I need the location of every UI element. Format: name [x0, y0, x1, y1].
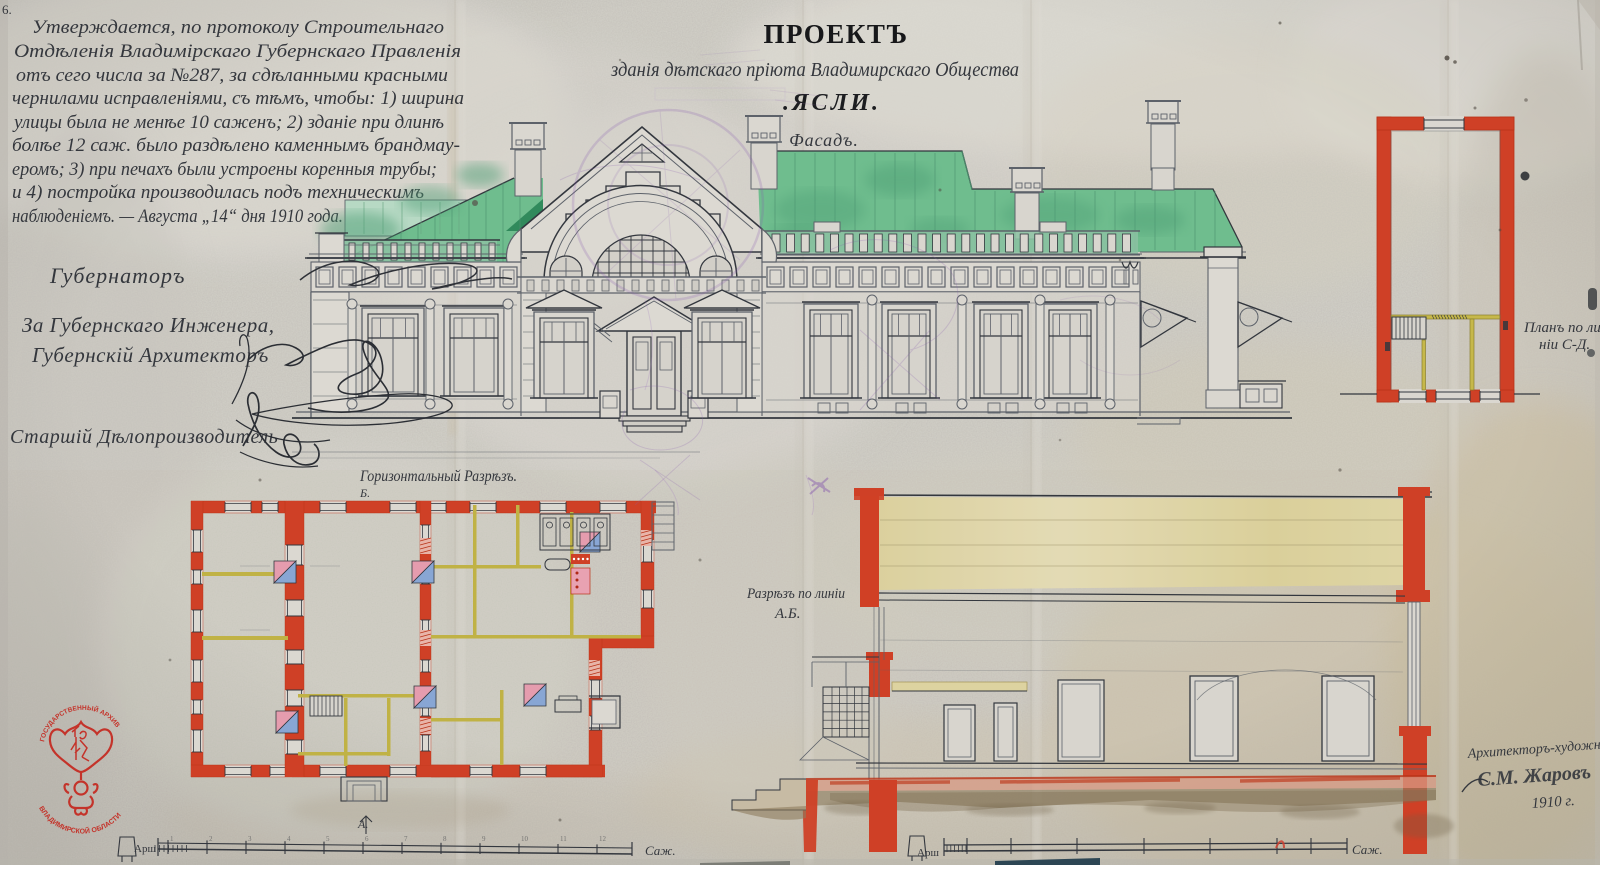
- svg-text:11: 11: [560, 835, 567, 843]
- svg-text:Фасадъ.: Фасадъ.: [789, 130, 859, 150]
- svg-text:9: 9: [482, 835, 486, 843]
- svg-text:Планъ по ли: Планъ по ли: [1523, 320, 1600, 336]
- svg-text:Саж.: Саж.: [645, 843, 676, 858]
- svg-text:2: 2: [209, 835, 213, 843]
- svg-text:5: 5: [326, 835, 330, 843]
- svg-text:Губернскій Архитекторъ: Губернскій Архитекторъ: [31, 343, 269, 367]
- svg-text:зданія дѣтскаго пріюта Влад: зданія дѣтскаго пріюта Владимирскаго Общ…: [610, 59, 1019, 81]
- svg-text:8: 8: [443, 835, 447, 843]
- svg-text:еромъ; 3) при печахъ были уст: еромъ; 3) при печахъ были устроены корен…: [12, 159, 437, 180]
- svg-text:Отдѣленія Владимірскаго Губерн: Отдѣленія Владимірскаго Губернскаго Прав…: [14, 41, 461, 62]
- svg-text:Б.: Б.: [359, 486, 370, 500]
- svg-text:улицы была не менѣе 10 саженъ;: улицы была не менѣе 10 саженъ; 2) зданіе…: [12, 112, 444, 133]
- svg-text:наблюденіемъ. — Августа „14“ д: наблюденіемъ. — Августа „14“ дня 1910 го…: [12, 206, 362, 227]
- svg-text:А.Б.: А.Б.: [774, 606, 801, 622]
- svg-text:6.: 6.: [2, 2, 12, 17]
- svg-text:Старшій Дѣлопроизводитель: Старшій Дѣлопроизводитель: [10, 426, 278, 448]
- svg-text:Арш: Арш: [134, 843, 156, 855]
- svg-text:Саж.: Саж.: [1352, 842, 1383, 857]
- svg-text:7: 7: [404, 835, 408, 843]
- svg-text:1: 1: [170, 835, 174, 843]
- svg-text:болѣе 12 саж. было раздѣлено к: болѣе 12 саж. было раздѣлено каменнымъ б…: [12, 135, 460, 156]
- svg-text:ніи С-Д.: ніи С-Д.: [1539, 337, 1590, 353]
- svg-text:отъ сего числа за №287, за сдѣ: отъ сего числа за №287, за сдѣланными кр…: [16, 65, 448, 86]
- svg-text:4: 4: [287, 835, 291, 843]
- svg-text:Губернаторъ: Губернаторъ: [49, 263, 185, 288]
- svg-text:Арш: Арш: [917, 847, 939, 859]
- svg-text:За Губернскаго Инженера,: За Губернскаго Инженера,: [22, 313, 275, 337]
- svg-text:ПРОЕКТЪ: ПРОЕКТЪ: [763, 19, 908, 49]
- svg-text:1910 г.: 1910 г.: [1531, 793, 1575, 812]
- svg-text:6: 6: [365, 835, 369, 843]
- svg-text:10: 10: [521, 835, 529, 843]
- svg-text:12: 12: [599, 835, 607, 843]
- svg-text:Горизонтальный Разрѣзъ.: Горизонтальный Разрѣзъ.: [359, 468, 517, 485]
- svg-text:Разрѣзъ по линіи: Разрѣзъ по линіи: [746, 586, 845, 602]
- svg-text:Утверждается, по протоколу Стр: Утверждается, по протоколу Строительнаго: [32, 17, 444, 38]
- svg-text:чернилами исправленіями, съ тѣ: чернилами исправленіями, съ тѣмъ, чтобы:…: [12, 88, 464, 109]
- svg-text:3: 3: [248, 835, 252, 843]
